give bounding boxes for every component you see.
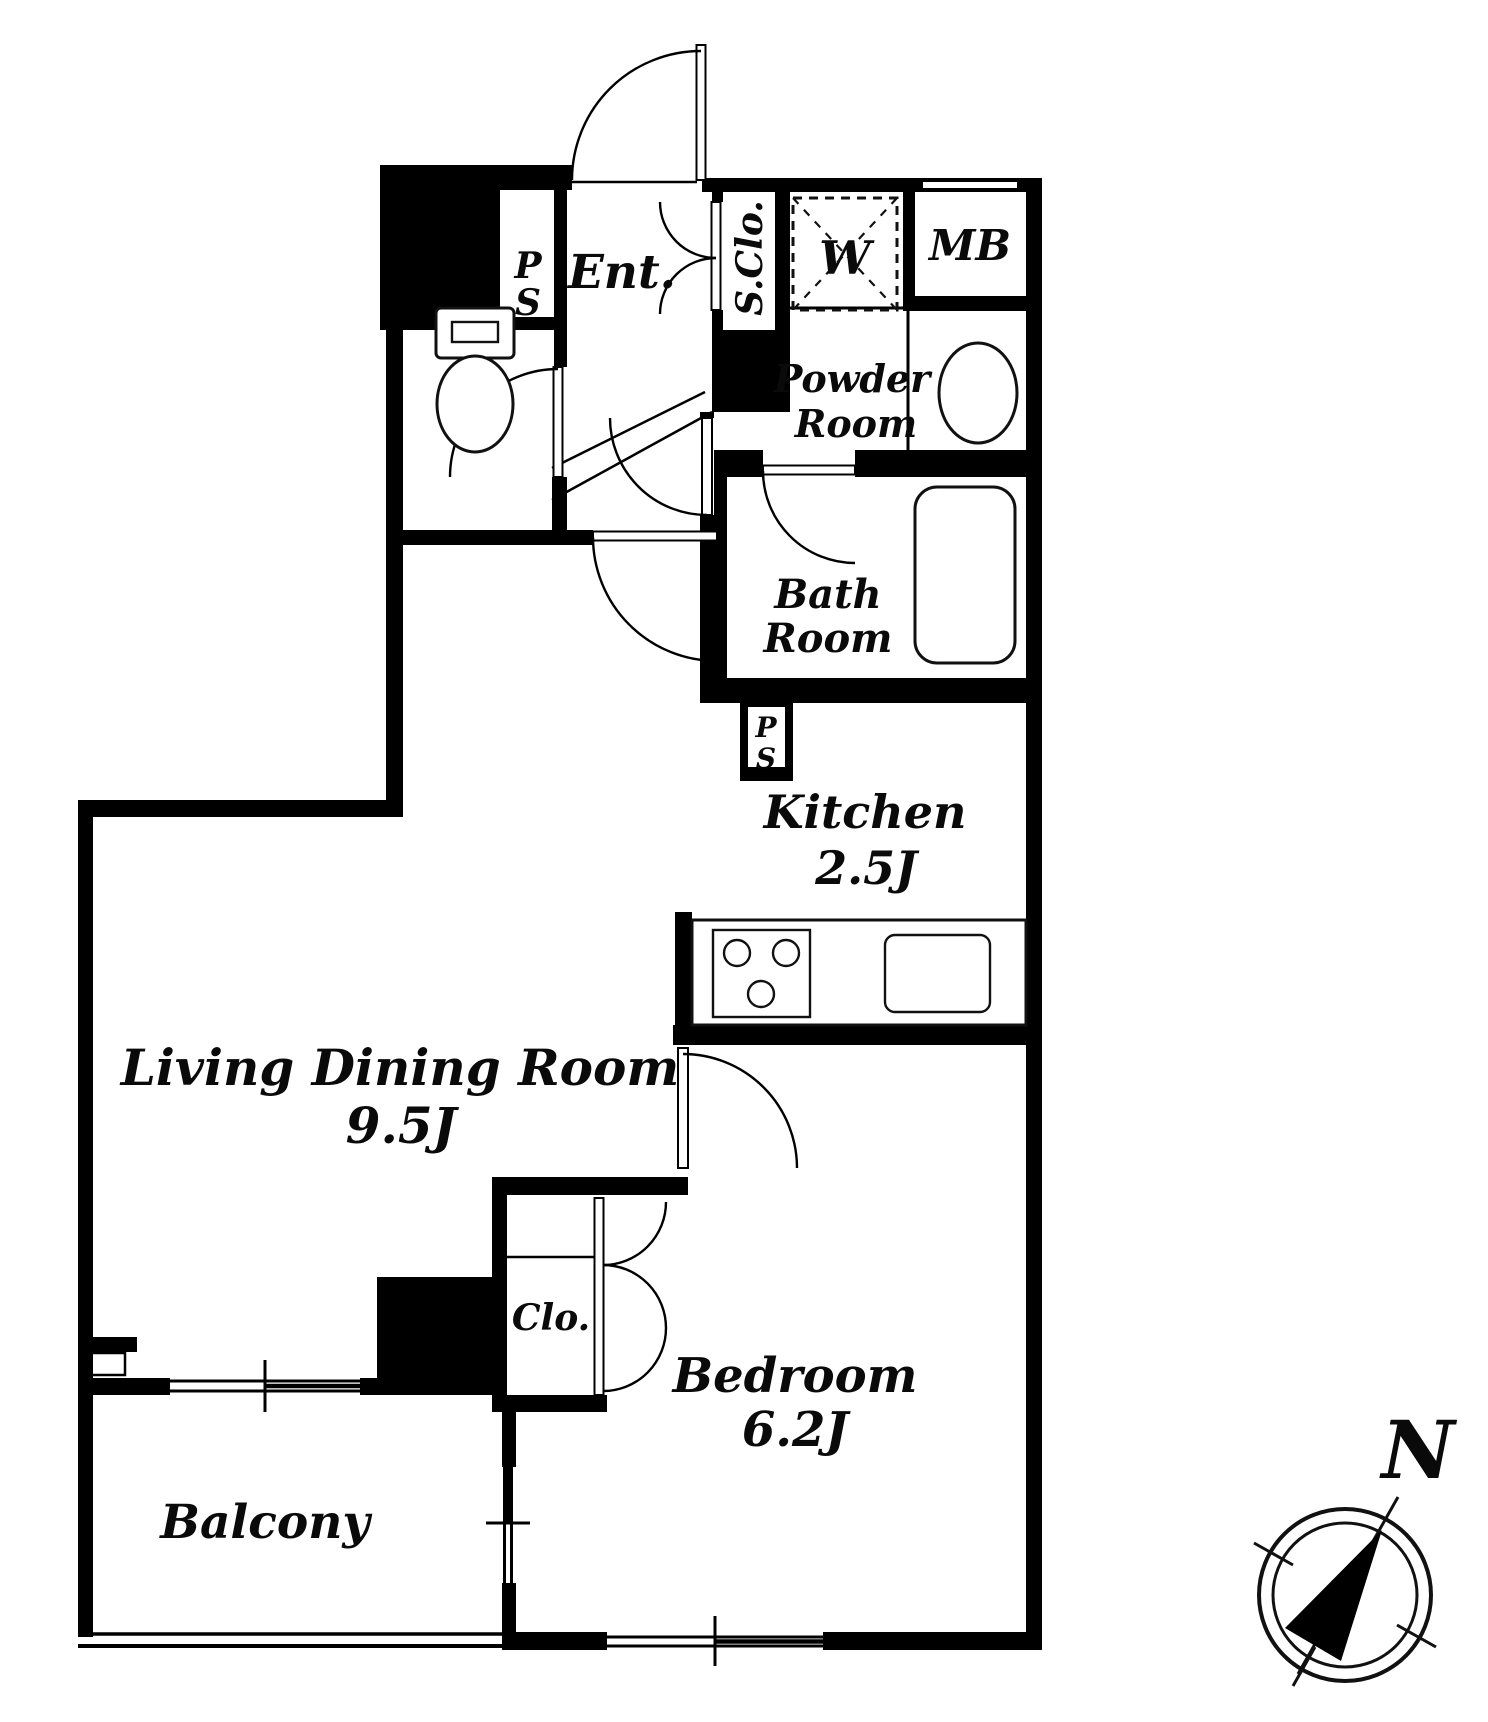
bath-room-door <box>763 466 855 564</box>
toilet-icon <box>436 308 514 452</box>
wall-segment <box>386 530 593 545</box>
label-living-dining-room: Living Dining Room <box>119 1038 680 1097</box>
wall-segment <box>552 477 567 533</box>
label-bedroom: Bedroom <box>671 1348 918 1404</box>
floor-plan-page: N Ent. P S S.Clo. W MB Powder Room Bath … <box>0 0 1488 1722</box>
label-bath-room-1: Bath <box>773 571 881 618</box>
wall-segment <box>673 1025 1042 1045</box>
wall-segment <box>554 190 567 367</box>
wall-segment <box>903 296 1042 311</box>
bedroom-door <box>678 1048 797 1168</box>
compass-needle-icon <box>1285 1530 1382 1661</box>
wall-segment <box>714 477 727 515</box>
wall-pillar <box>377 1277 503 1395</box>
bathtub-icon <box>915 487 1015 663</box>
wall-segment <box>775 178 790 330</box>
label-shoe-closet: S.Clo. <box>729 200 771 316</box>
wall-segment-outer-east <box>1026 178 1042 1650</box>
hall-living-door <box>593 532 717 662</box>
label-pipe-space-entrance-p: P <box>513 245 542 287</box>
powder-sink-icon <box>939 343 1017 443</box>
wall-segment <box>360 1378 377 1395</box>
label-meter-box: MB <box>927 221 1011 270</box>
label-entrance: Ent. <box>566 245 676 300</box>
wall-segment <box>702 178 923 192</box>
entrance-door <box>572 45 706 180</box>
label-closet: Clo. <box>512 1297 590 1339</box>
label-living-dining-room-size: 9.5J <box>346 1096 460 1155</box>
wall-segment <box>78 800 402 817</box>
wall-segment <box>700 678 1042 703</box>
living-balcony-window <box>170 1360 360 1412</box>
wall-segment <box>712 310 723 330</box>
wall-segment <box>93 1337 137 1352</box>
floor-plan-svg: N Ent. P S S.Clo. W MB Powder Room Bath … <box>0 0 1488 1722</box>
wall-segment <box>923 178 1017 182</box>
wall-segment <box>712 192 723 202</box>
bedroom-balcony-window <box>486 1467 530 1583</box>
kitchen-counter <box>692 920 1026 1025</box>
wall-segment <box>502 1412 516 1467</box>
wall-segment <box>855 450 1026 477</box>
label-bedroom-size: 6.2J <box>742 1402 852 1458</box>
balcony-step-box <box>88 1353 125 1375</box>
wall-segment <box>675 912 692 1025</box>
label-washing-machine: W <box>819 231 875 285</box>
bedroom-south-window <box>607 1616 823 1666</box>
wall-segment-outer-west <box>78 800 93 1352</box>
wall-segment <box>492 1177 688 1195</box>
label-powder-room-1: Powder <box>773 356 933 401</box>
room-labels: Ent. P S S.Clo. W MB Powder Room Bath Ro… <box>119 200 1011 1550</box>
wall-segment <box>823 1632 1042 1650</box>
label-balcony: Balcony <box>158 1495 372 1550</box>
compass: N <box>1254 1403 1457 1686</box>
wall-segment <box>923 188 1017 192</box>
compass-north-label: N <box>1378 1403 1457 1497</box>
label-kitchen: Kitchen <box>762 785 967 839</box>
label-pipe-space-kitchen-p: P <box>754 711 777 744</box>
closet-bifold-doors <box>595 1198 667 1395</box>
label-bath-room-2: Room <box>763 615 893 662</box>
wall-segment <box>492 1395 607 1412</box>
wall-segment <box>492 1195 507 1412</box>
wall-segment <box>78 1378 170 1395</box>
wall-segment <box>386 330 403 817</box>
label-kitchen-size: 2.5J <box>814 841 920 895</box>
label-pipe-space-entrance-s: S <box>515 282 541 324</box>
label-pipe-space-kitchen-s: S <box>756 742 776 775</box>
wall-segment <box>903 185 915 296</box>
wall-segment <box>502 1632 607 1650</box>
wall-segment <box>714 450 763 477</box>
label-powder-room-2: Room <box>794 401 917 446</box>
